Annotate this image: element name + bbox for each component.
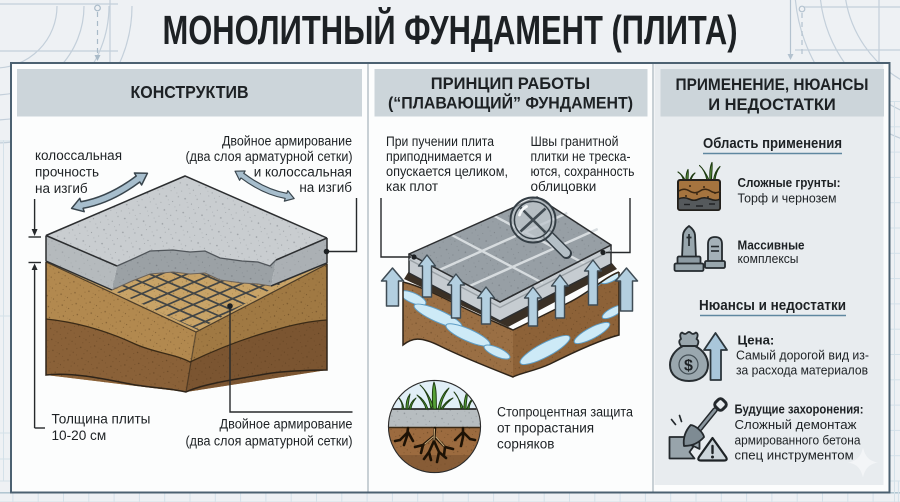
svg-text:$: $ (684, 358, 693, 375)
svg-text:армированного бетона: армированного бетона (735, 433, 862, 448)
svg-text:Двойное армирование: Двойное армирование (222, 134, 352, 149)
svg-text:Двойное армирование: Двойное армирование (220, 417, 353, 432)
svg-text:сорняков: сорняков (497, 437, 554, 452)
svg-text:Швы гранитной: Швы гранитной (531, 134, 619, 149)
svg-text:от прорастания: от прорастания (497, 421, 594, 436)
svg-text:облицовки: облицовки (531, 179, 597, 194)
svg-text:плитки не треска-: плитки не треска- (531, 149, 631, 164)
svg-text:Нюансы и недостатки: Нюансы и недостатки (699, 297, 846, 314)
svg-text:комплексы: комплексы (738, 251, 799, 266)
svg-text:за расхода материалов: за расхода материалов (736, 363, 868, 378)
svg-text:приподнимается и: приподнимается и (386, 149, 492, 164)
svg-text:ПРИНЦИП РАБОТЫ: ПРИНЦИП РАБОТЫ (431, 75, 590, 93)
svg-text:как плот: как плот (386, 179, 438, 194)
svg-text:МОНОЛИТНЫЙ ФУНДАМЕНТ (ПЛИТА): МОНОЛИТНЫЙ ФУНДАМЕНТ (ПЛИТА) (163, 7, 738, 53)
svg-text:спец инструментом: спец инструментом (735, 448, 854, 463)
svg-text:Стопроцентная защита: Стопроцентная защита (497, 405, 633, 420)
svg-text:Толщина плиты: Толщина плиты (52, 412, 151, 427)
svg-text:ются, сохранность: ются, сохранность (531, 164, 635, 179)
svg-text:Торф и чернозем: Торф и чернозем (738, 191, 837, 206)
svg-text:При пучении плита: При пучении плита (386, 134, 494, 149)
svg-text:и колоссальная: и колоссальная (254, 165, 352, 180)
svg-text:колоссальная: колоссальная (35, 148, 122, 163)
svg-text:10-20 см: 10-20 см (52, 428, 107, 443)
svg-text:Будущие захоронения:: Будущие захоронения: (735, 402, 864, 417)
svg-text:опускается целиком,: опускается целиком, (386, 164, 508, 179)
svg-text:Область применения: Область применения (703, 135, 842, 152)
svg-text:прочность: прочность (35, 165, 99, 180)
svg-text:(два слоя арматурной сетки): (два слоя арматурной сетки) (186, 434, 353, 449)
svg-text:(два слоя арматурной сетки): (два слоя арматурной сетки) (186, 149, 353, 164)
svg-text:Сложные грунты:: Сложные грунты: (738, 175, 841, 190)
svg-text:на изгиб: на изгиб (299, 180, 352, 195)
svg-text:ПРИМЕНЕНИЕ, НЮАНСЫ: ПРИМЕНЕНИЕ, НЮАНСЫ (676, 76, 869, 94)
svg-text:Цена:: Цена: (738, 333, 775, 348)
svg-text:Сложный демонтаж: Сложный демонтаж (735, 417, 857, 432)
svg-text:(“ПЛАВАЮЩИЙ” ФУНДАМЕНТ): (“ПЛАВАЮЩИЙ” ФУНДАМЕНТ) (388, 94, 633, 113)
svg-text:КОНСТРУКТИВ: КОНСТРУКТИВ (131, 82, 249, 102)
svg-text:И НЕДОСТАТКИ: И НЕДОСТАТКИ (708, 96, 836, 114)
svg-text:на изгиб: на изгиб (35, 181, 88, 196)
svg-text:Самый дорогой вид из-: Самый дорогой вид из- (736, 348, 869, 363)
